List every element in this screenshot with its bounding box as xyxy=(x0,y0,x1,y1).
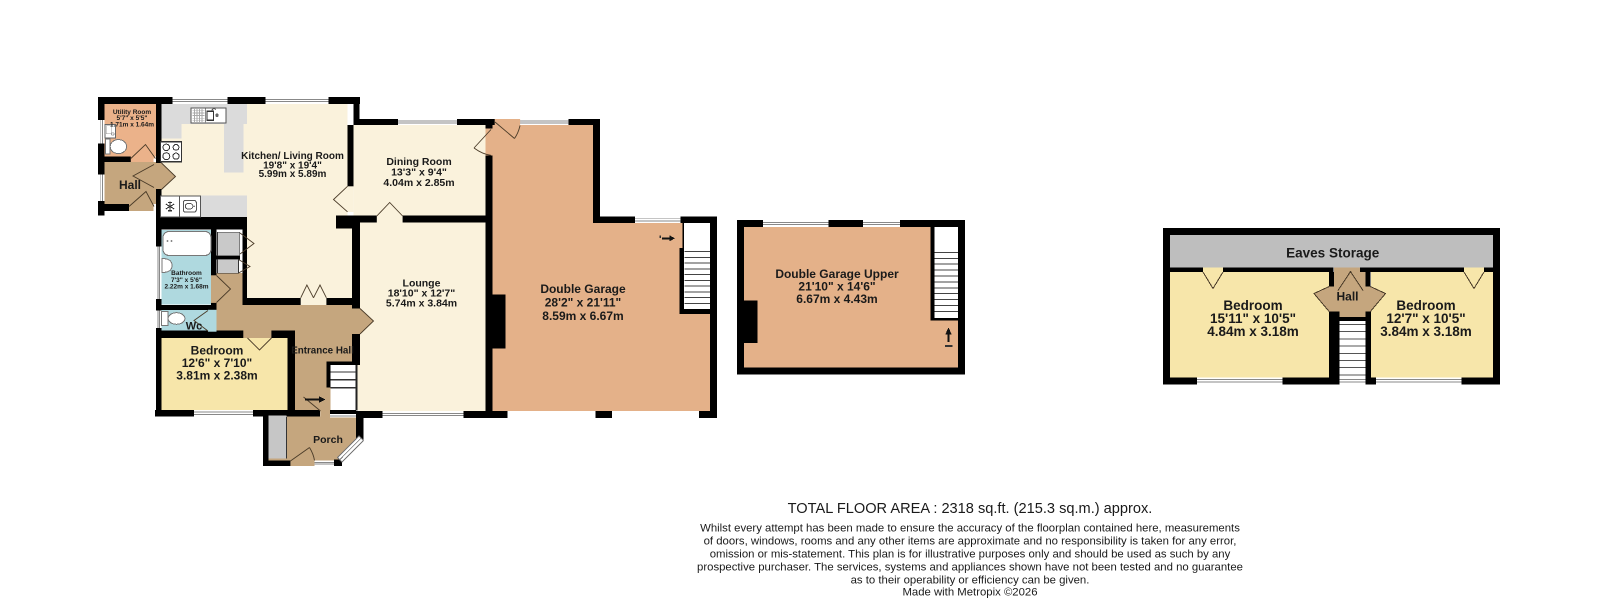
svg-text:as to their operability or eff: as to their operability or efficiency ca… xyxy=(851,575,1090,587)
svg-text:Double Garage: Double Garage xyxy=(540,282,626,296)
svg-text:28'2" x 21'11": 28'2" x 21'11" xyxy=(545,296,621,310)
svg-text:Wc: Wc xyxy=(186,321,203,333)
svg-text:4.84m x 3.18m: 4.84m x 3.18m xyxy=(1207,324,1299,339)
svg-text:6.67m x 4.43m: 6.67m x 4.43m xyxy=(796,292,877,306)
svg-text:Hall: Hall xyxy=(119,178,141,192)
svg-text:Porch: Porch xyxy=(313,434,343,446)
svg-text:prospective purchaser. The ser: prospective purchaser. The services, sys… xyxy=(697,562,1243,574)
svg-text:5.99m x 5.89m: 5.99m x 5.89m xyxy=(259,169,327,180)
svg-text:8.59m x 6.67m: 8.59m x 6.67m xyxy=(542,309,623,323)
svg-text:3.84m x 3.18m: 3.84m x 3.18m xyxy=(1380,324,1472,339)
svg-text:5.74m x 3.84m: 5.74m x 3.84m xyxy=(386,298,457,310)
svg-text:2.22m x 1.68m: 2.22m x 1.68m xyxy=(164,284,208,291)
svg-text:Entrance Hall: Entrance Hall xyxy=(291,346,354,357)
svg-text:4.04m x 2.85m: 4.04m x 2.85m xyxy=(383,177,454,189)
svg-text:Made with Metropix ©2026: Made with Metropix ©2026 xyxy=(902,587,1037,598)
svg-text:omission or mis-statement. Thi: omission or mis-statement. This plan is … xyxy=(710,549,1231,561)
svg-text:TOTAL FLOOR AREA : 2318 sq.ft.: TOTAL FLOOR AREA : 2318 sq.ft. (215.3 sq… xyxy=(788,501,1153,517)
svg-text:3.81m x 2.38m: 3.81m x 2.38m xyxy=(176,369,257,383)
svg-text:1.71m x 1.64m: 1.71m x 1.64m xyxy=(110,122,154,129)
svg-text:Hall: Hall xyxy=(1336,289,1358,303)
svg-text:Eaves Storage: Eaves Storage xyxy=(1286,245,1380,260)
svg-text:of doors, windows, rooms and a: of doors, windows, rooms and any other i… xyxy=(704,536,1237,548)
svg-text:Whilst every attempt has been: Whilst every attempt has been made to en… xyxy=(700,523,1240,535)
